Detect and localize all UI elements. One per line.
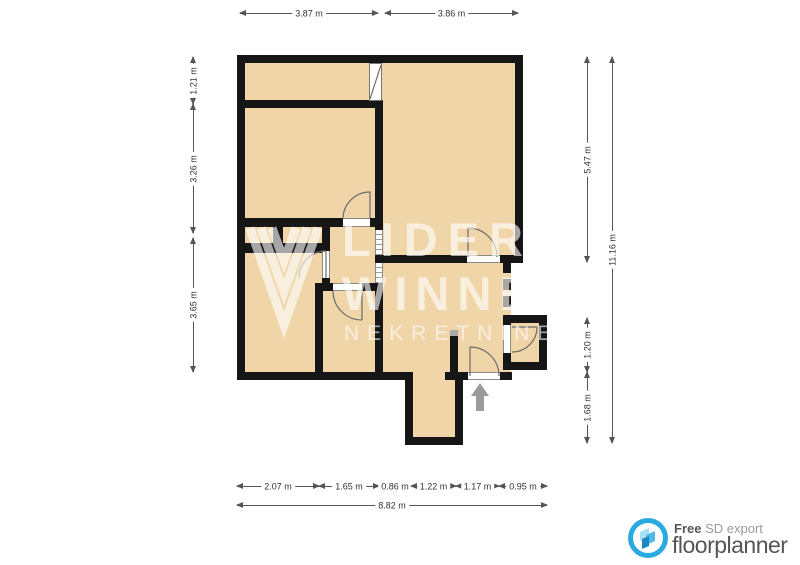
dimension-1.21-m: 1.21 m <box>189 57 198 104</box>
watermark-line-1: LIDER <box>342 212 533 267</box>
dimension-1.17-m: 1.17 m <box>456 482 499 491</box>
wall-extension-left <box>405 380 413 445</box>
wall-room-separator <box>315 283 323 372</box>
dimension-label: 0.95 m <box>506 481 540 492</box>
dimension-label: 2.07 m <box>261 481 295 492</box>
dimension-label: 3.65 m <box>188 288 199 322</box>
dimension-label: 1.22 m <box>417 481 451 492</box>
dimension-label: 0.86 m <box>378 481 412 492</box>
door-threshold-entrance <box>468 372 500 380</box>
wall-living-left-upper <box>375 100 383 230</box>
dimension-label: 11.16 m <box>607 231 618 269</box>
dimension-0.95-m: 0.95 m <box>499 482 547 491</box>
dimension-label: 5.47 m <box>582 143 593 177</box>
floorplanner-logo-icon <box>628 518 668 558</box>
dimension-1.68-m: 1.68 m <box>583 372 592 443</box>
dimension-label: 1.17 m <box>461 481 495 492</box>
dimension-11.16-m: 11.16 m <box>608 57 617 443</box>
wall-outer-bottom-left <box>237 372 413 380</box>
wall-closet-right <box>322 227 330 243</box>
dimension-1.20-m: 1.20 m <box>583 318 592 372</box>
balcony-door <box>369 63 382 101</box>
door-threshold-room-a <box>322 251 330 278</box>
dimension-label: 3.86 m <box>435 8 469 19</box>
watermark-line-3: NEKRETNINE <box>344 322 559 346</box>
dimension-label: 3.26 m <box>188 152 199 186</box>
dimension-8.82-m: 8.82 m <box>237 501 547 510</box>
dimension-1.22-m: 1.22 m <box>411 482 456 491</box>
dimension-5.47-m: 5.47 m <box>583 57 592 262</box>
wall-extension-right <box>455 380 463 437</box>
dimension-3.86-m: 3.86 m <box>385 9 518 18</box>
dimension-1.65-m: 1.65 m <box>319 482 379 491</box>
dimension-2.07-m: 2.07 m <box>237 482 319 491</box>
entry-arrow-icon <box>471 383 489 411</box>
wall-closet-divider <box>273 227 283 243</box>
wall-sideroom-left-lower <box>503 353 511 370</box>
dimension-label: 1.21 m <box>188 64 199 98</box>
wall-closet-bottom <box>237 243 330 253</box>
dimension-label: 1.68 m <box>582 391 593 425</box>
dimension-label: 1.20 m <box>582 328 593 362</box>
wall-balcony-bottom <box>237 100 383 108</box>
floorplanner-brand-text: floorplanner <box>672 532 787 559</box>
floorplan-export: LIDER WINNE NEKRETNINE 3.87 m 3.86 m 2.0… <box>0 0 800 565</box>
dimension-0.86-m: 0.86 m <box>379 482 411 491</box>
dimension-3.26-m: 3.26 m <box>189 104 198 233</box>
wall-outer-bottom-mid <box>445 372 468 380</box>
dimension-3.65-m: 3.65 m <box>189 238 198 372</box>
wall-outer-top <box>237 55 523 63</box>
dimension-label: 8.82 m <box>375 500 409 511</box>
dimension-label: 3.87 m <box>292 8 326 19</box>
dimension-3.87-m: 3.87 m <box>240 9 378 18</box>
wall-outer-bottom-right <box>500 372 512 380</box>
wall-extension-bottom <box>405 437 463 445</box>
wall-doorjamb-a <box>322 243 330 251</box>
watermark-line-2: WINNE <box>342 266 539 321</box>
dimension-label: 1.65 m <box>332 481 366 492</box>
